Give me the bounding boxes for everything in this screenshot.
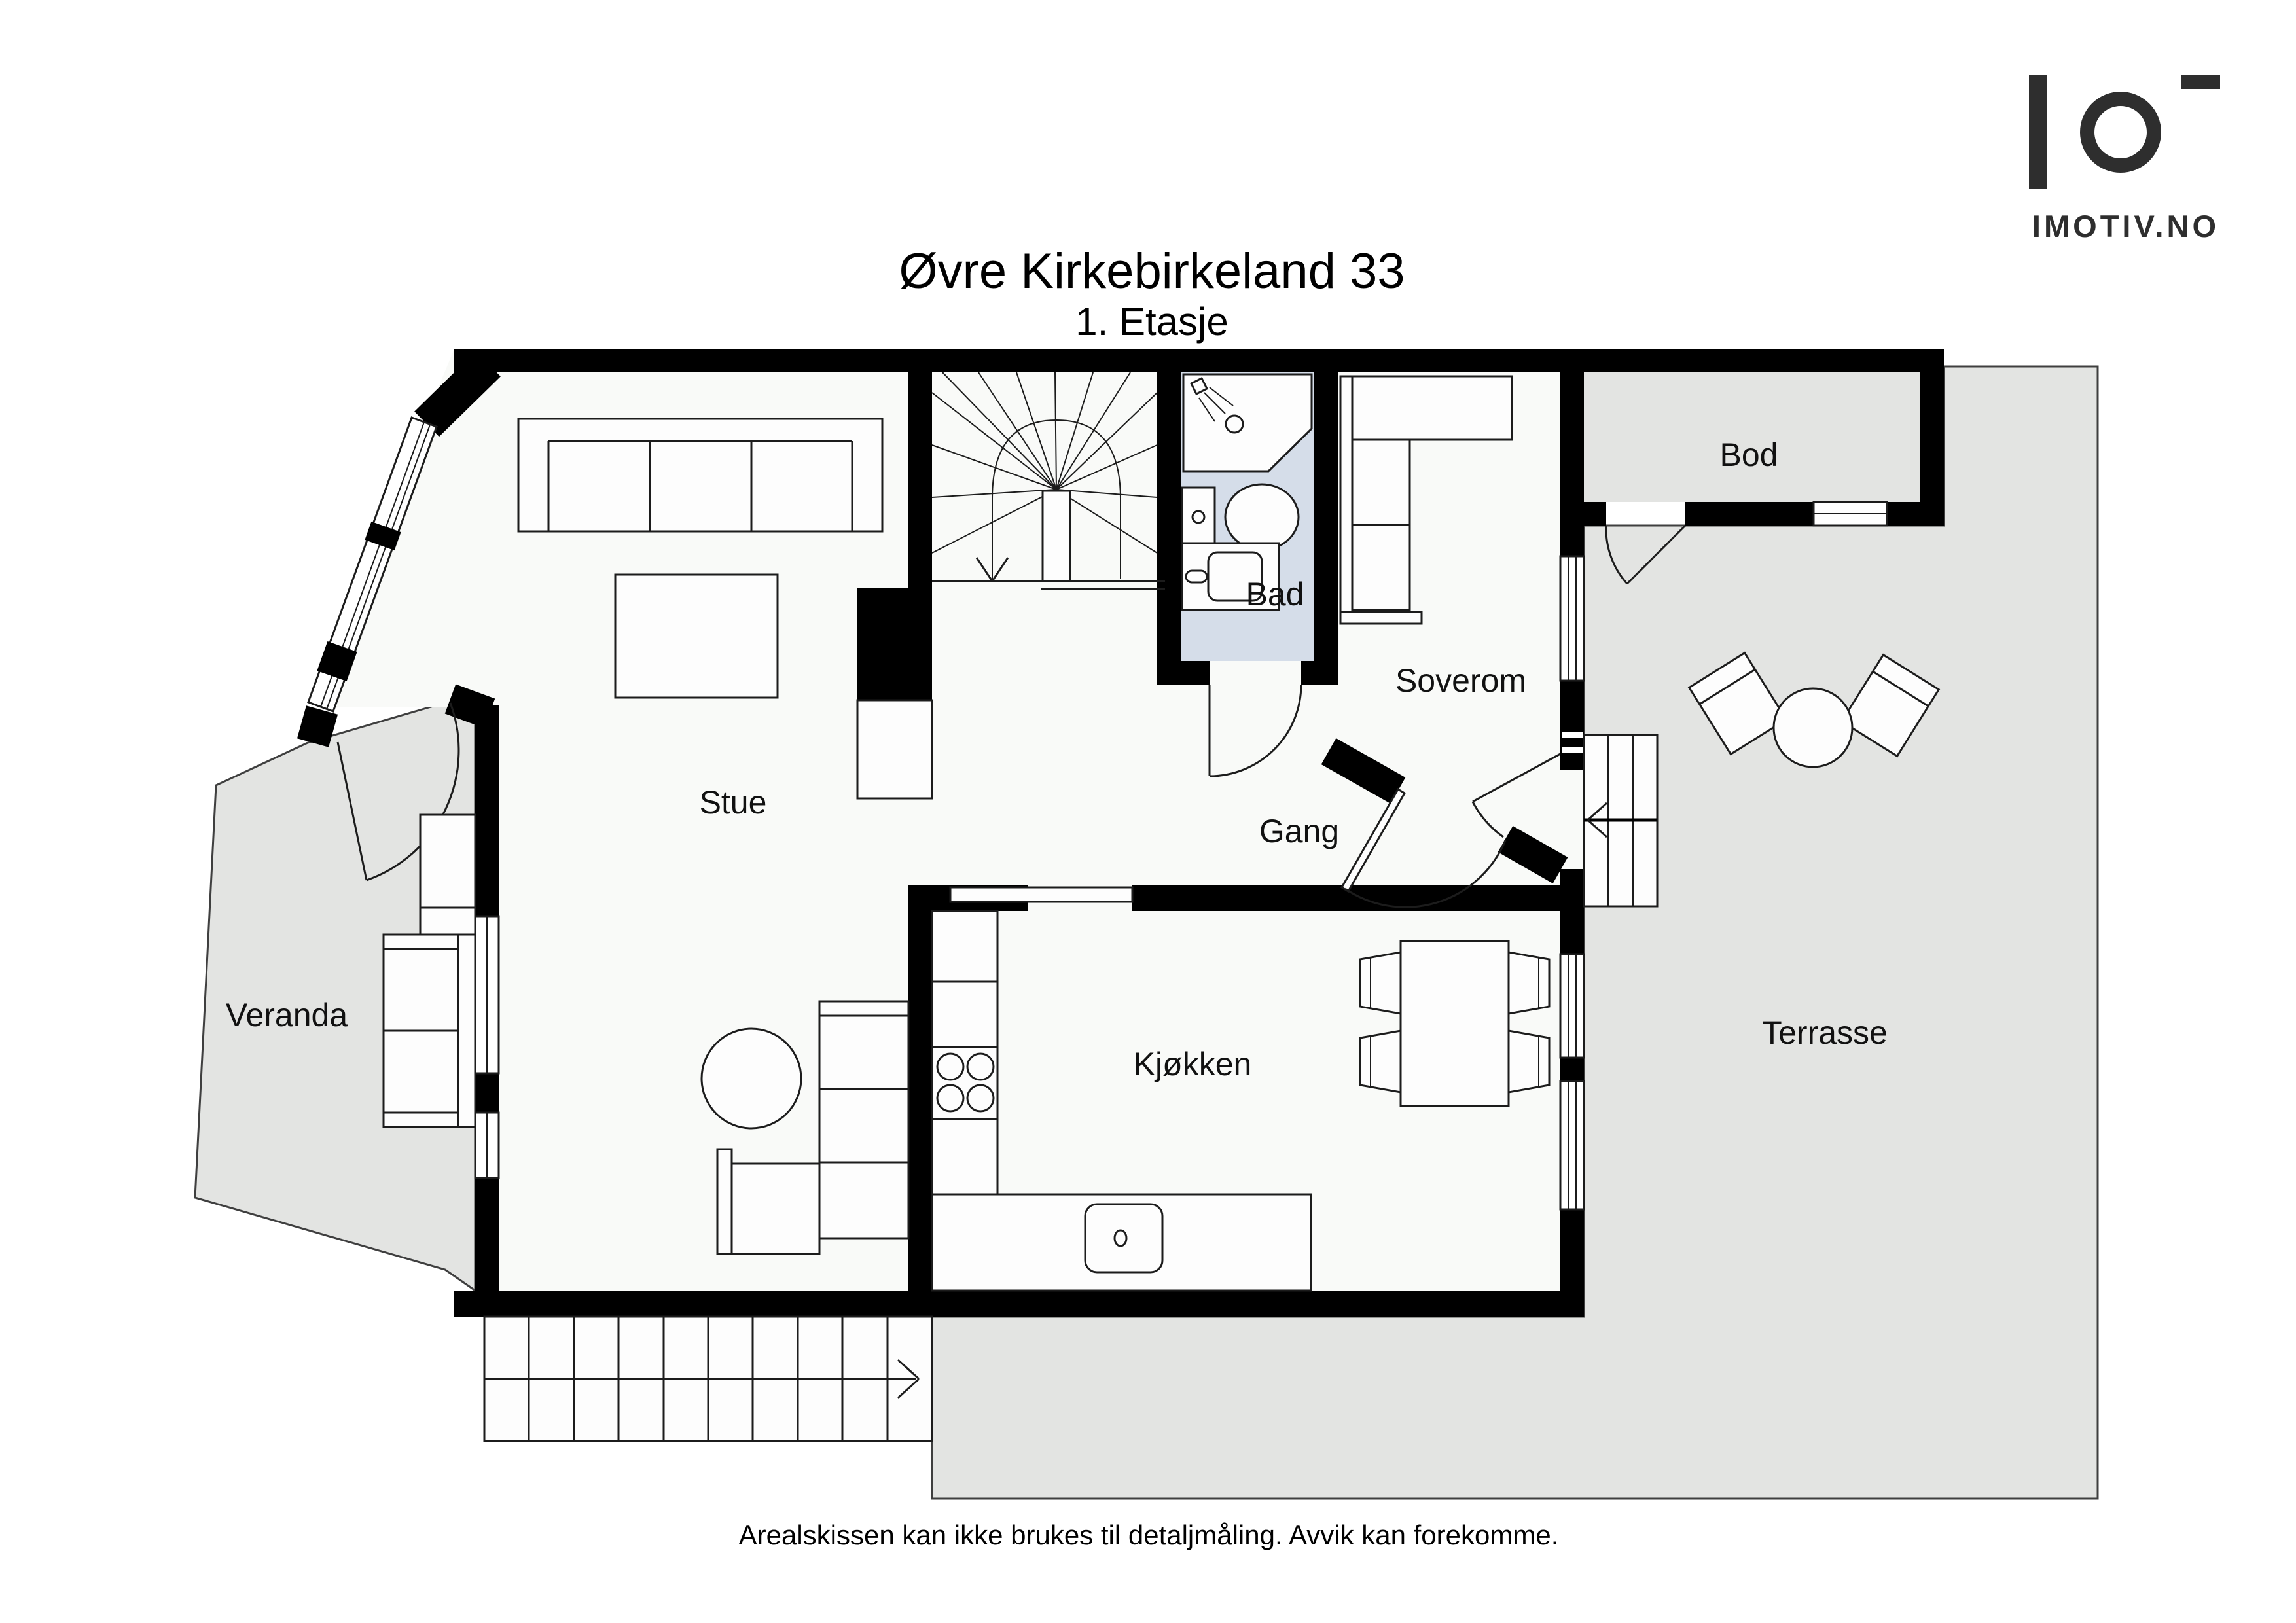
west-wall: [475, 1073, 499, 1113]
west-wall: [475, 705, 499, 916]
east-wall: [1560, 372, 1584, 556]
kitchen-north-wall: [1132, 885, 1584, 911]
veranda-sofa: [384, 935, 475, 1127]
east-wall: [1560, 869, 1584, 954]
room-label-bod: Bod: [1720, 437, 1778, 473]
door-frame: [1562, 732, 1583, 738]
kitchen-sink: [1085, 1204, 1162, 1272]
room-label-bad: Bad: [1246, 576, 1304, 613]
west-wall: [475, 1178, 499, 1291]
dining-chair: [1509, 952, 1549, 1014]
dining-chair: [1509, 1031, 1549, 1092]
east-wall: [1560, 1209, 1584, 1291]
coffee-table: [615, 575, 778, 698]
east-exterior-stairs: [1584, 735, 1657, 906]
kitchen-window: [1560, 1081, 1584, 1209]
toilet: [1182, 484, 1299, 550]
north-wall: [454, 349, 1944, 372]
stue-west-window: [475, 1113, 499, 1178]
bod-south-wall: [1887, 502, 1944, 526]
stue-kitchen-wall: [908, 911, 932, 1291]
stair-newel: [1043, 491, 1070, 581]
window-mullion: [380, 527, 386, 545]
east-wall: [1560, 681, 1584, 770]
bathroom-west-wall: [1157, 372, 1181, 685]
stair-wall: [908, 372, 932, 588]
room-label-veranda: Veranda: [226, 997, 348, 1033]
page: Øvre Kirkebirkeland 33 1. Etasje IMOTIV.…: [0, 0, 2296, 1623]
room-label-stue: Stue: [700, 784, 767, 821]
bod-south-wall: [1584, 502, 1606, 526]
east-wall: [1560, 1058, 1584, 1081]
window-mullion: [332, 647, 342, 676]
bod-east-wall: [1920, 349, 1944, 526]
bathroom-south-wall: [1157, 661, 1210, 685]
soverom-window: [1560, 556, 1584, 681]
stair-wall-block: [857, 588, 932, 700]
sliding-door: [950, 887, 1132, 902]
room-label-soverom: Soverom: [1395, 662, 1526, 699]
bod-window: [1814, 502, 1887, 526]
logo-bar-icon: [2029, 75, 2047, 189]
dining-chair: [1360, 1031, 1401, 1092]
page-title: Øvre Kirkebirkeland 33: [899, 243, 1405, 299]
sofa: [518, 419, 882, 531]
bathroom-east-wall: [1314, 372, 1338, 685]
round-table: [702, 1029, 801, 1128]
veranda-door-jamb: [313, 710, 322, 743]
bathroom-south-wall: [1301, 661, 1338, 685]
south-exterior-stairs: [484, 1317, 932, 1441]
room-label-kjokken: Kjøkken: [1134, 1046, 1252, 1082]
room-label-terrasse: Terrasse: [1762, 1014, 1888, 1051]
logo-text: IMOTIV.NO: [2032, 209, 2219, 243]
logo-dash-icon: [2181, 75, 2220, 89]
door-frame: [1562, 747, 1583, 753]
dining-chair: [1360, 952, 1401, 1014]
kitchen-window: [1560, 954, 1584, 1058]
stair-cabinet: [857, 700, 932, 798]
disclaimer-text: Arealskissen kan ikke brukes til detaljm…: [739, 1520, 1559, 1550]
south-wall: [454, 1291, 1584, 1317]
terrace-table: [1774, 688, 1852, 767]
floor-plan-canvas: Øvre Kirkebirkeland 33 1. Etasje IMOTIV.…: [0, 0, 2296, 1623]
bod-south-wall: [1685, 502, 1814, 526]
stue-west-window: [475, 916, 499, 1073]
room-label-gang: Gang: [1259, 813, 1339, 849]
dining-table: [1401, 941, 1509, 1106]
page-subtitle: 1. Etasje: [1075, 300, 1228, 344]
